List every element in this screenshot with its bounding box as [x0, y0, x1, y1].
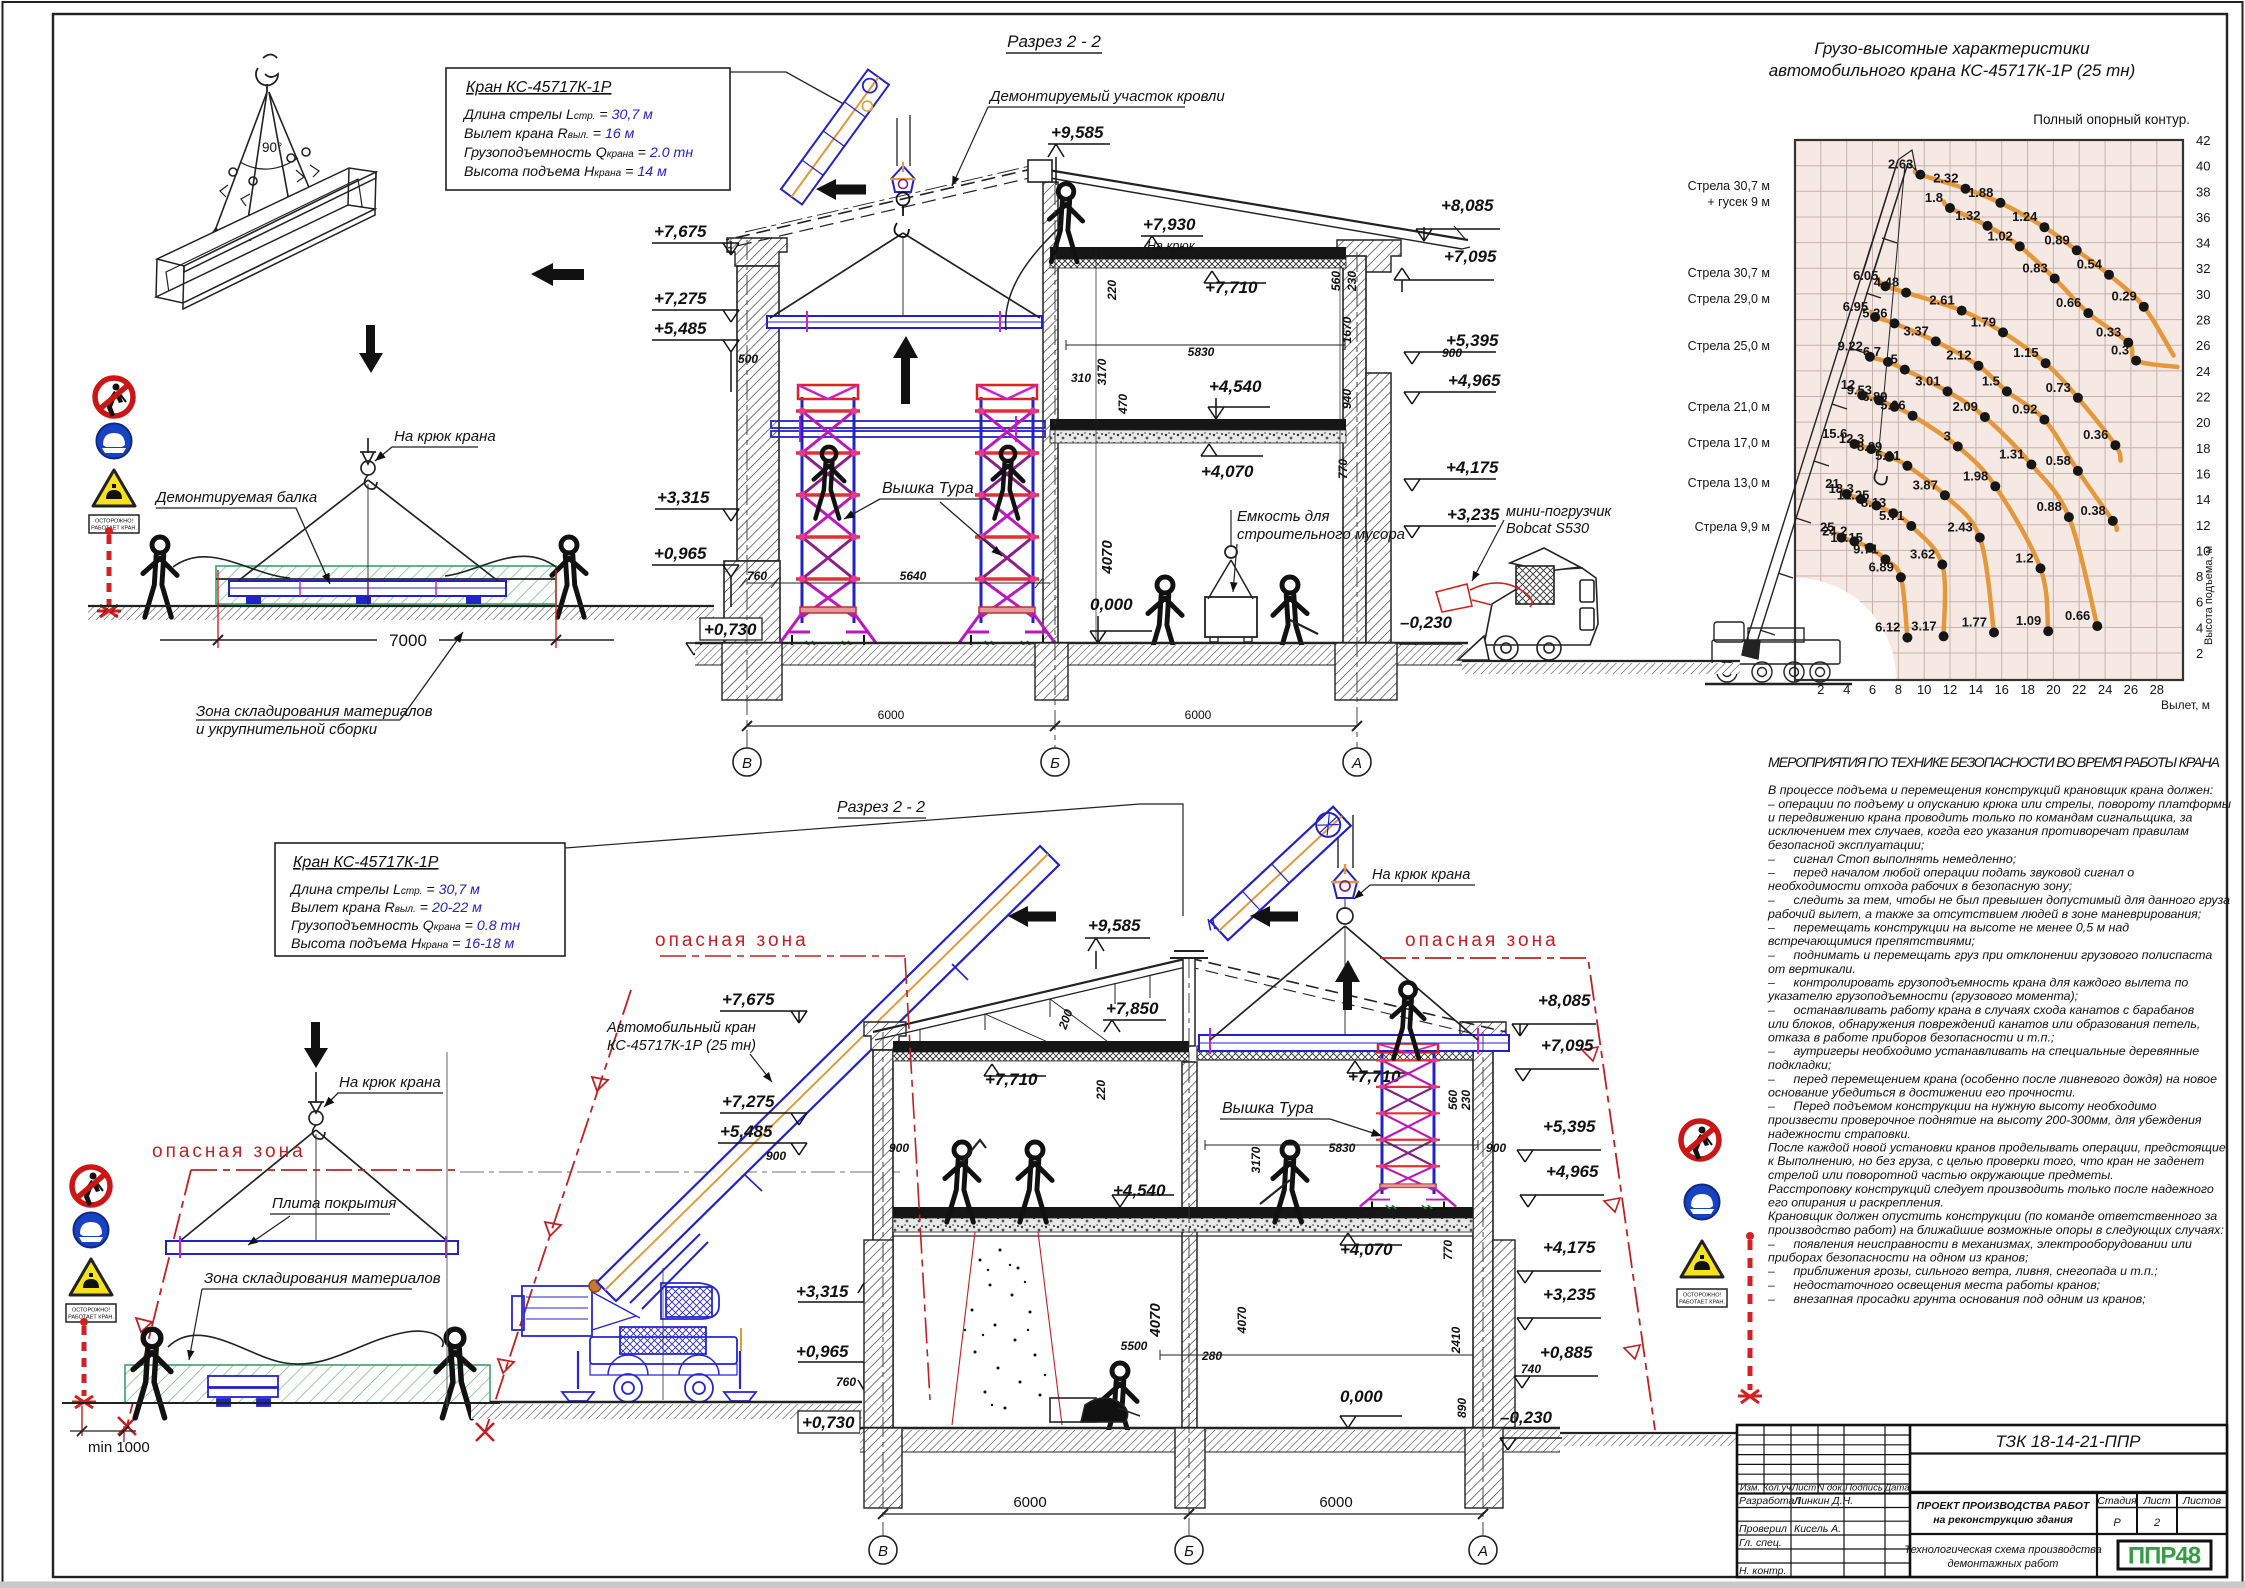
svg-text:+4,175: +4,175: [1543, 1238, 1596, 1257]
svg-text:– Перед подъемом конструкции: – Перед подъемом конструкции на нужную в…: [1767, 1099, 2157, 1113]
svg-text:7000: 7000: [389, 631, 427, 650]
svg-text:+7,095: +7,095: [1541, 1036, 1594, 1055]
svg-text:+7,930: +7,930: [1143, 215, 1196, 234]
svg-text:безопасной эксплуатации;: безопасной эксплуатации;: [1768, 838, 1925, 852]
svg-text:0.38: 0.38: [2080, 503, 2105, 518]
svg-text:18: 18: [2196, 441, 2210, 456]
svg-text:1.31: 1.31: [1999, 447, 2024, 462]
svg-text:+0,730: +0,730: [802, 1413, 855, 1432]
svg-text:0.83: 0.83: [2022, 261, 2047, 276]
svg-text:– останавливать работу крана: – останавливать работу крана в случаях с…: [1767, 1003, 2195, 1017]
svg-text:Кран КС-45717К-1Р: Кран КС-45717К-1Р: [466, 79, 612, 96]
svg-text:Плита покрытия: Плита покрытия: [272, 1195, 396, 1212]
svg-text:– перемещать конструкции на в: – перемещать конструкции на высоте не ме…: [1767, 921, 2129, 935]
svg-text:1670: 1670: [1340, 316, 1354, 343]
svg-text:14: 14: [2196, 492, 2210, 507]
svg-text:22: 22: [2196, 390, 2210, 405]
svg-text:Проверил: Проверил: [1739, 1523, 1787, 1535]
svg-text:4070: 4070: [1099, 540, 1116, 575]
svg-text:Емкость для: Емкость для: [1237, 508, 1330, 525]
svg-text:Вышка Тура: Вышка Тура: [882, 480, 974, 497]
svg-text:12: 12: [2196, 518, 2210, 533]
svg-text:А: А: [1477, 1543, 1488, 1560]
svg-text:– аутригеры необходимо устана: – аутригеры необходимо устанавливать на …: [1767, 1044, 2199, 1058]
svg-text:демонтажных работ: демонтажных работ: [1948, 1558, 2059, 1570]
svg-text:опасная зона: опасная зона: [1405, 930, 1559, 951]
svg-text:Зона складирования материалов: Зона складирования материалов: [196, 703, 433, 720]
svg-text:4.48: 4.48: [1874, 275, 1899, 290]
svg-text:6000: 6000: [1319, 1494, 1352, 1511]
svg-text:740: 740: [1521, 1362, 1541, 1376]
svg-text:4070: 4070: [1147, 1303, 1164, 1338]
svg-text:5830: 5830: [1188, 345, 1215, 359]
svg-text:Полный опорный контур.: Полный опорный контур.: [2033, 112, 2190, 127]
svg-text:Длина стрелы Lстр. = 30,7 м: Длина стрелы Lстр. = 30,7 м: [462, 107, 653, 123]
svg-text:min 1000: min 1000: [88, 1439, 150, 1456]
svg-text:Разрез 2 - 2: Разрез 2 - 2: [837, 799, 925, 816]
svg-text:+7,675: +7,675: [722, 990, 775, 1009]
svg-text:20: 20: [2196, 415, 2210, 430]
svg-text:отказа в работе приборов безоп: отказа в работе приборов безопасности и …: [1768, 1031, 2055, 1045]
svg-text:Стрела 13,0 м: Стрела 13,0 м: [1688, 476, 1770, 490]
svg-text:2410: 2410: [1449, 1326, 1463, 1354]
svg-text:3: 3: [1944, 429, 1951, 444]
svg-text:Стрела 25,0 м: Стрела 25,0 м: [1688, 339, 1770, 353]
svg-text:Дата: Дата: [1883, 1483, 1909, 1494]
svg-text:– перед перемещением крана (о: – перед перемещением крана (особенно пос…: [1767, 1072, 2217, 1086]
svg-text:+3,235: +3,235: [1447, 505, 1500, 524]
svg-text:В процессе подъема и перемещен: В процессе подъема и перемещения констру…: [1768, 783, 2213, 797]
svg-text:Н. контр.: Н. контр.: [1739, 1565, 1786, 1577]
svg-text:– недостаточного освещения ме: – недостаточного освещения места работы …: [1767, 1278, 2101, 1292]
svg-text:встречающимися препятствиями;: встречающимися препятствиями;: [1768, 934, 1975, 948]
svg-text:На крюк крана: На крюк крана: [339, 1074, 441, 1091]
svg-text:24: 24: [2196, 364, 2210, 379]
svg-text:34: 34: [2196, 236, 2210, 251]
svg-text:Стадия: Стадия: [2097, 1495, 2137, 1507]
svg-text:На крюк крана: На крюк крана: [1372, 867, 1470, 883]
svg-text:0.33: 0.33: [2096, 325, 2121, 340]
svg-text:– перед началом любой операци: – перед началом любой операции подать зв…: [1767, 866, 2134, 880]
svg-text:900: 900: [1486, 1141, 1506, 1155]
svg-text:Стрела 17,0 м: Стрела 17,0 м: [1688, 436, 1770, 450]
svg-text:Кол.уч: Кол.уч: [1763, 1483, 1791, 1494]
svg-text:+3,315: +3,315: [796, 1282, 849, 1301]
svg-text:+4,965: +4,965: [1448, 371, 1501, 390]
svg-text:ТЗК 18-14-21-ППР: ТЗК 18-14-21-ППР: [1995, 1432, 2141, 1451]
svg-text:строительного мусора: строительного мусора: [1237, 526, 1405, 543]
svg-text:+7,710: +7,710: [1348, 1067, 1401, 1086]
svg-text:+8,085: +8,085: [1538, 991, 1591, 1010]
svg-text:90°: 90°: [262, 140, 282, 155]
svg-text:Изм.: Изм.: [1740, 1483, 1760, 1494]
svg-text:указателю грузоподъемности (гр: указателю грузоподъемности (грузового мо…: [1767, 989, 2079, 1003]
svg-text:560: 560: [1446, 1090, 1460, 1110]
svg-text:900: 900: [766, 1149, 786, 1163]
svg-text:+9,585: +9,585: [1088, 916, 1141, 935]
svg-text:– сигнал Стоп выполнять немед: – сигнал Стоп выполнять немедленно;: [1767, 852, 2017, 866]
svg-text:+0,885: +0,885: [1540, 1343, 1593, 1362]
svg-text:исключением тех случаев, когда: исключением тех случаев, когда его указа…: [1768, 824, 2189, 838]
svg-text:Стрела 29,0 м: Стрела 29,0 м: [1688, 292, 1770, 306]
svg-text:произвести проверочное подняти: произвести проверочное поднятие на высот…: [1768, 1113, 2202, 1127]
svg-text:– поднимать и перемещать груз: – поднимать и перемещать груз при отклон…: [1767, 948, 2212, 962]
svg-text:470: 470: [1116, 394, 1130, 415]
svg-text:Высота подъема Нкрана = 14 м: Высота подъема Нкрана = 14 м: [464, 164, 667, 180]
svg-text:Подпись: Подпись: [1845, 1483, 1883, 1494]
svg-text:+0,965: +0,965: [654, 544, 707, 563]
svg-text:3170: 3170: [1249, 1146, 1263, 1173]
svg-text:0,000: 0,000: [1090, 595, 1133, 614]
svg-text:Расстроповку конструкций следу: Расстроповку конструкций следует произво…: [1768, 1182, 2214, 1196]
svg-text:+7,275: +7,275: [722, 1092, 775, 1111]
svg-text:+7,710: +7,710: [1205, 278, 1258, 297]
svg-text:Гл. спец.: Гл. спец.: [1739, 1537, 1782, 1549]
svg-text:28: 28: [2150, 682, 2164, 697]
svg-text:Грузоподъемность Qкрана = 0.8: Грузоподъемность Qкрана = 0.8 тн: [291, 918, 520, 934]
svg-text:– следить за тем, чтобы не бы: – следить за тем, чтобы не был превышен …: [1767, 893, 2230, 907]
svg-text:3.37: 3.37: [1903, 323, 1928, 338]
svg-text:Стрела 30,7 м: Стрела 30,7 м: [1688, 179, 1770, 193]
svg-text:16: 16: [1994, 682, 2008, 697]
svg-text:5830: 5830: [1329, 1141, 1356, 1155]
svg-text:к Выполнению, но без груза, с: к Выполнению, но без груза, с целью пров…: [1768, 1154, 2204, 1168]
svg-text:3.17: 3.17: [1911, 618, 1936, 633]
svg-text:2.43: 2.43: [1947, 520, 1972, 535]
svg-text:6.12: 6.12: [1875, 620, 1900, 635]
svg-text:+8,085: +8,085: [1441, 196, 1494, 215]
svg-text:5: 5: [1891, 352, 1898, 367]
svg-text:+3,235: +3,235: [1543, 1285, 1596, 1304]
svg-text:0.66: 0.66: [2065, 608, 2090, 623]
svg-text:на реконструкцию здания: на реконструкцию здания: [1933, 1514, 2073, 1526]
svg-text:Разрез 2 - 2: Разрез 2 - 2: [1007, 32, 1101, 51]
svg-text:необходимости отхода рабочих в: необходимости отхода рабочих в безопасну…: [1768, 879, 2073, 893]
svg-text:опасная зона: опасная зона: [152, 1141, 306, 1162]
svg-text:0.92: 0.92: [2012, 402, 2037, 417]
svg-text:500: 500: [738, 352, 758, 366]
svg-text:Технологическая схема производ: Технологическая схема производства: [1904, 1544, 2102, 1556]
svg-text:N док.: N док.: [1817, 1483, 1844, 1494]
svg-text:2.61: 2.61: [1929, 293, 1954, 308]
svg-text:Стрела 30,7 м: Стрела 30,7 м: [1688, 266, 1770, 280]
svg-text:надежности страповки.: надежности страповки.: [1768, 1127, 1911, 1141]
svg-text:На крюк: На крюк: [1147, 239, 1196, 253]
svg-text:приборах безопасности на одном: приборах безопасности на одном из кранов…: [1768, 1251, 2029, 1265]
svg-text:42: 42: [2196, 133, 2210, 148]
svg-text:36: 36: [2196, 210, 2210, 225]
svg-text:1.32: 1.32: [1955, 208, 1980, 223]
svg-text:Демонтируемый участок кровли: Демонтируемый участок кровли: [988, 88, 1225, 105]
svg-text:Б: Б: [1050, 755, 1060, 772]
svg-text:3170: 3170: [1095, 358, 1109, 385]
svg-text:4070: 4070: [1235, 1306, 1249, 1334]
svg-text:+7,710: +7,710: [985, 1070, 1038, 1089]
svg-text:26: 26: [2196, 338, 2210, 353]
svg-text:автомобильного крана КС-45717К: автомобильного крана КС-45717К-1Р (25 тн…: [1769, 61, 2136, 80]
svg-text:0.89: 0.89: [2044, 232, 2069, 247]
svg-text:9.71: 9.71: [1853, 541, 1878, 556]
svg-text:– операции по подъему и опуска: – операции по подъему и опусканию крюка …: [1767, 797, 2231, 811]
svg-text:6000: 6000: [1185, 708, 1212, 722]
svg-text:Вылет крана Rвыл. = 20-22 м: Вылет крана Rвыл. = 20-22 м: [291, 900, 482, 916]
svg-text:6000: 6000: [878, 708, 905, 722]
svg-text:2.12: 2.12: [1946, 348, 1971, 363]
svg-text:6.89: 6.89: [1869, 559, 1894, 574]
svg-text:– контролировать грузоподъемн: – контролировать грузоподъемность крана …: [1767, 976, 2188, 990]
svg-text:32: 32: [2196, 261, 2210, 276]
svg-text:Высота подъема, м: Высота подъема, м: [2203, 546, 2215, 645]
svg-text:+4,965: +4,965: [1546, 1162, 1599, 1181]
svg-text:220: 220: [1105, 280, 1119, 301]
svg-text:После каждой новой установки к: После каждой новой установки кранов прод…: [1768, 1141, 2226, 1155]
svg-text:Стрела 21,0 м: Стрела 21,0 м: [1688, 400, 1770, 414]
svg-text:1.24: 1.24: [2012, 209, 2038, 224]
svg-text:+4,540: +4,540: [1113, 1181, 1166, 1200]
svg-text:900: 900: [889, 1141, 909, 1155]
svg-text:2: 2: [2196, 646, 2203, 661]
svg-text:0.29: 0.29: [2111, 289, 2136, 304]
svg-text:+7,675: +7,675: [654, 222, 707, 241]
svg-text:0,000: 0,000: [1340, 1387, 1383, 1406]
svg-text:28: 28: [2196, 313, 2210, 328]
svg-text:22: 22: [2072, 682, 2086, 697]
svg-text:2.09: 2.09: [1953, 399, 1978, 414]
svg-text:900: 900: [1442, 346, 1462, 360]
svg-text:1.09: 1.09: [2016, 613, 2041, 628]
svg-text:+7,850: +7,850: [1106, 999, 1159, 1018]
svg-text:производство работ) на ближайш: производство работ) на ближайшие возможн…: [1768, 1223, 2224, 1237]
svg-text:6000: 6000: [1013, 1494, 1046, 1511]
svg-text:2.32: 2.32: [1933, 171, 1958, 186]
svg-text:стрелой или поворотной частью: стрелой или поворотной частью окружающие…: [1768, 1168, 2114, 1182]
svg-text:– внезапная просадки грунта о: – внезапная просадки грунта основания по…: [1767, 1292, 2146, 1306]
svg-text:5640: 5640: [900, 569, 927, 583]
svg-text:1.77: 1.77: [1962, 615, 1987, 630]
svg-text:770: 770: [1336, 459, 1350, 479]
svg-text:3.01: 3.01: [1915, 373, 1940, 388]
svg-text:Вылет крана Rвыл. = 16 м: Вылет крана Rвыл. = 16 м: [464, 126, 635, 142]
svg-text:760: 760: [747, 569, 767, 583]
svg-text:Высота подъема Нкрана = 16-18: Высота подъема Нкрана = 16-18 м: [291, 936, 515, 952]
svg-text:12: 12: [1943, 682, 1957, 697]
svg-text:+4,540: +4,540: [1209, 377, 1262, 396]
svg-text:и укрупнительной сборки: и укрупнительной сборки: [196, 721, 378, 738]
svg-text:310: 310: [1071, 371, 1091, 385]
svg-text:КС-45717К-1Р (25 тн): КС-45717К-1Р (25 тн): [607, 1038, 756, 1054]
svg-text:В: В: [878, 1543, 888, 1560]
svg-text:+5,395: +5,395: [1543, 1117, 1596, 1136]
svg-text:опасная зона: опасная зона: [655, 930, 809, 951]
svg-text:Лист: Лист: [1791, 1483, 1817, 1494]
svg-text:В: В: [742, 755, 752, 772]
svg-text:Демонтируемая балка: Демонтируемая балка: [154, 489, 317, 506]
svg-text:Крановщик должен опустить конс: Крановщик должен опустить конструкции (п…: [1768, 1209, 2217, 1223]
svg-text:мини-погрузчик: мини-погрузчик: [1506, 504, 1612, 520]
svg-text:А: А: [1351, 755, 1362, 772]
svg-text:5.26: 5.26: [1862, 305, 1887, 320]
svg-text:18: 18: [2020, 682, 2034, 697]
svg-text:Вылет, м: Вылет, м: [2161, 698, 2210, 712]
svg-text:10: 10: [1917, 682, 1931, 697]
svg-text:+4,175: +4,175: [1446, 458, 1499, 477]
svg-text:Стрела 9,9 м: Стрела 9,9 м: [1695, 520, 1770, 534]
svg-text:1.88: 1.88: [1968, 185, 1993, 200]
svg-text:Б: Б: [1184, 1543, 1194, 1560]
svg-text:0.66: 0.66: [2056, 295, 2081, 310]
svg-text:30: 30: [2196, 287, 2210, 302]
svg-text:24: 24: [2098, 682, 2112, 697]
svg-text:–0,230: –0,230: [1400, 613, 1453, 632]
svg-text:+7,095: +7,095: [1444, 247, 1497, 266]
svg-text:770: 770: [1441, 1240, 1455, 1260]
svg-text:его опирания и раскрепления.: его опирания и раскрепления.: [1768, 1196, 1944, 1210]
svg-text:– приближения грозы, сильного: – приближения грозы, сильного ветра, лив…: [1767, 1264, 2158, 1278]
svg-text:760: 760: [836, 1375, 856, 1389]
svg-text:Листов: Листов: [2182, 1495, 2222, 1507]
svg-text:+0,965: +0,965: [796, 1342, 849, 1361]
svg-text:+4,070: +4,070: [1201, 462, 1254, 481]
svg-text:Линкин Д.Н.: Линкин Д.Н.: [1793, 1495, 1853, 1507]
svg-text:560: 560: [1329, 271, 1343, 291]
svg-text:от вертикали.: от вертикали.: [1768, 962, 1856, 976]
svg-text:Кисель А.: Кисель А.: [1794, 1523, 1841, 1535]
svg-text:Bobcat S530: Bobcat S530: [1506, 521, 1589, 537]
svg-text:16: 16: [2196, 467, 2210, 482]
svg-text:и передвижению крана проводить: и передвижению крана проводить только по…: [1768, 811, 2192, 825]
svg-text:Автомобильный кран: Автомобильный кран: [606, 1020, 756, 1036]
svg-text:5500: 5500: [1121, 1339, 1148, 1353]
svg-text:– появления неисправности в м: – появления неисправности в механизмах, …: [1767, 1237, 2192, 1251]
svg-text:Лист: Лист: [2142, 1495, 2170, 1507]
svg-text:Р: Р: [2113, 1517, 2121, 1529]
svg-text:Разработал: Разработал: [1739, 1495, 1800, 1507]
svg-text:890: 890: [1455, 1398, 1469, 1418]
svg-text:14: 14: [1969, 682, 1983, 697]
svg-text:3.62: 3.62: [1910, 547, 1935, 562]
svg-text:+0,730: +0,730: [704, 620, 757, 639]
svg-text:+ гусек 9 м: + гусек 9 м: [1707, 195, 1770, 209]
svg-text:Длина стрелы Lстр. = 30,7 м: Длина стрелы Lстр. = 30,7 м: [289, 882, 480, 898]
svg-text:0.54: 0.54: [2077, 257, 2103, 272]
svg-text:1.5: 1.5: [1982, 373, 2000, 388]
svg-text:+3,315: +3,315: [657, 488, 710, 507]
svg-text:+9,585: +9,585: [1051, 123, 1104, 142]
svg-text:+4,070: +4,070: [1340, 1240, 1393, 1259]
svg-text:Грузо-высотные характеристики: Грузо-высотные характеристики: [1814, 39, 2090, 58]
svg-text:8: 8: [1895, 682, 1902, 697]
svg-text:1.02: 1.02: [1987, 228, 2012, 243]
svg-text:На крюк крана: На крюк крана: [394, 428, 496, 445]
svg-text:основание убедиться в достижен: основание убедиться в достижении его про…: [1768, 1086, 2076, 1100]
svg-text:+7,275: +7,275: [654, 289, 707, 308]
svg-text:38: 38: [2196, 184, 2210, 199]
svg-text:0.73: 0.73: [2046, 380, 2071, 395]
svg-text:Зона складирования материалов: Зона складирования материалов: [204, 1270, 441, 1287]
svg-text:1.98: 1.98: [1963, 468, 1988, 483]
svg-text:+5,485: +5,485: [720, 1122, 773, 1141]
svg-text:2: 2: [2153, 1517, 2160, 1529]
svg-text:20: 20: [2046, 682, 2060, 697]
svg-text:26: 26: [2124, 682, 2138, 697]
svg-text:МЕРОПРИЯТИЯ ПО ТЕХНИКЕ БЕЗОПАС: МЕРОПРИЯТИЯ ПО ТЕХНИКЕ БЕЗОПАСНОСТИ ВО В…: [1768, 755, 2220, 771]
svg-text:5.06: 5.06: [1880, 398, 1905, 413]
svg-text:1.8: 1.8: [1925, 190, 1943, 205]
svg-text:+5,485: +5,485: [654, 319, 707, 338]
svg-text:ПРОЕКТ ПРОИЗВОДСТВА РАБОТ: ПРОЕКТ ПРОИЗВОДСТВА РАБОТ: [1917, 1500, 2091, 1512]
svg-text:6: 6: [1869, 682, 1876, 697]
svg-text:5.71: 5.71: [1879, 508, 1904, 523]
svg-text:Кран КС-45717К-1Р: Кран КС-45717К-1Р: [293, 854, 439, 871]
svg-text:220: 220: [1094, 1080, 1108, 1101]
svg-text:1.2: 1.2: [2015, 550, 2033, 565]
svg-text:1.79: 1.79: [1971, 314, 1996, 329]
svg-text:ППР48: ППР48: [2128, 1543, 2201, 1570]
svg-text:Грузоподъемность Qкрана = 2.0: Грузоподъемность Qкрана = 2.0 тн: [464, 145, 693, 161]
svg-text:подкладки;: подкладки;: [1768, 1058, 1832, 1072]
svg-text:3.87: 3.87: [1913, 477, 1938, 492]
svg-text:1.15: 1.15: [2013, 345, 2038, 360]
svg-text:0.88: 0.88: [2037, 499, 2062, 514]
svg-text:940: 940: [1340, 389, 1354, 409]
svg-text:–0,230: –0,230: [1500, 1408, 1553, 1427]
svg-text:0.3: 0.3: [2111, 343, 2129, 358]
svg-text:230: 230: [1459, 1090, 1473, 1111]
svg-text:40: 40: [2196, 159, 2210, 174]
svg-text:Вышка Тура: Вышка Тура: [1222, 1100, 1314, 1117]
svg-text:рабочий вылет, а также за отсу: рабочий вылет, а также за отсутствием лю…: [1767, 907, 2202, 921]
svg-text:6.7: 6.7: [1863, 344, 1881, 359]
svg-text:0.36: 0.36: [2083, 427, 2108, 442]
svg-text:280: 280: [1201, 1349, 1222, 1363]
svg-text:или блоков, обнаружения повреж: или блоков, обнаружения повреждений кана…: [1768, 1017, 2200, 1031]
svg-text:0.58: 0.58: [2046, 453, 2071, 468]
